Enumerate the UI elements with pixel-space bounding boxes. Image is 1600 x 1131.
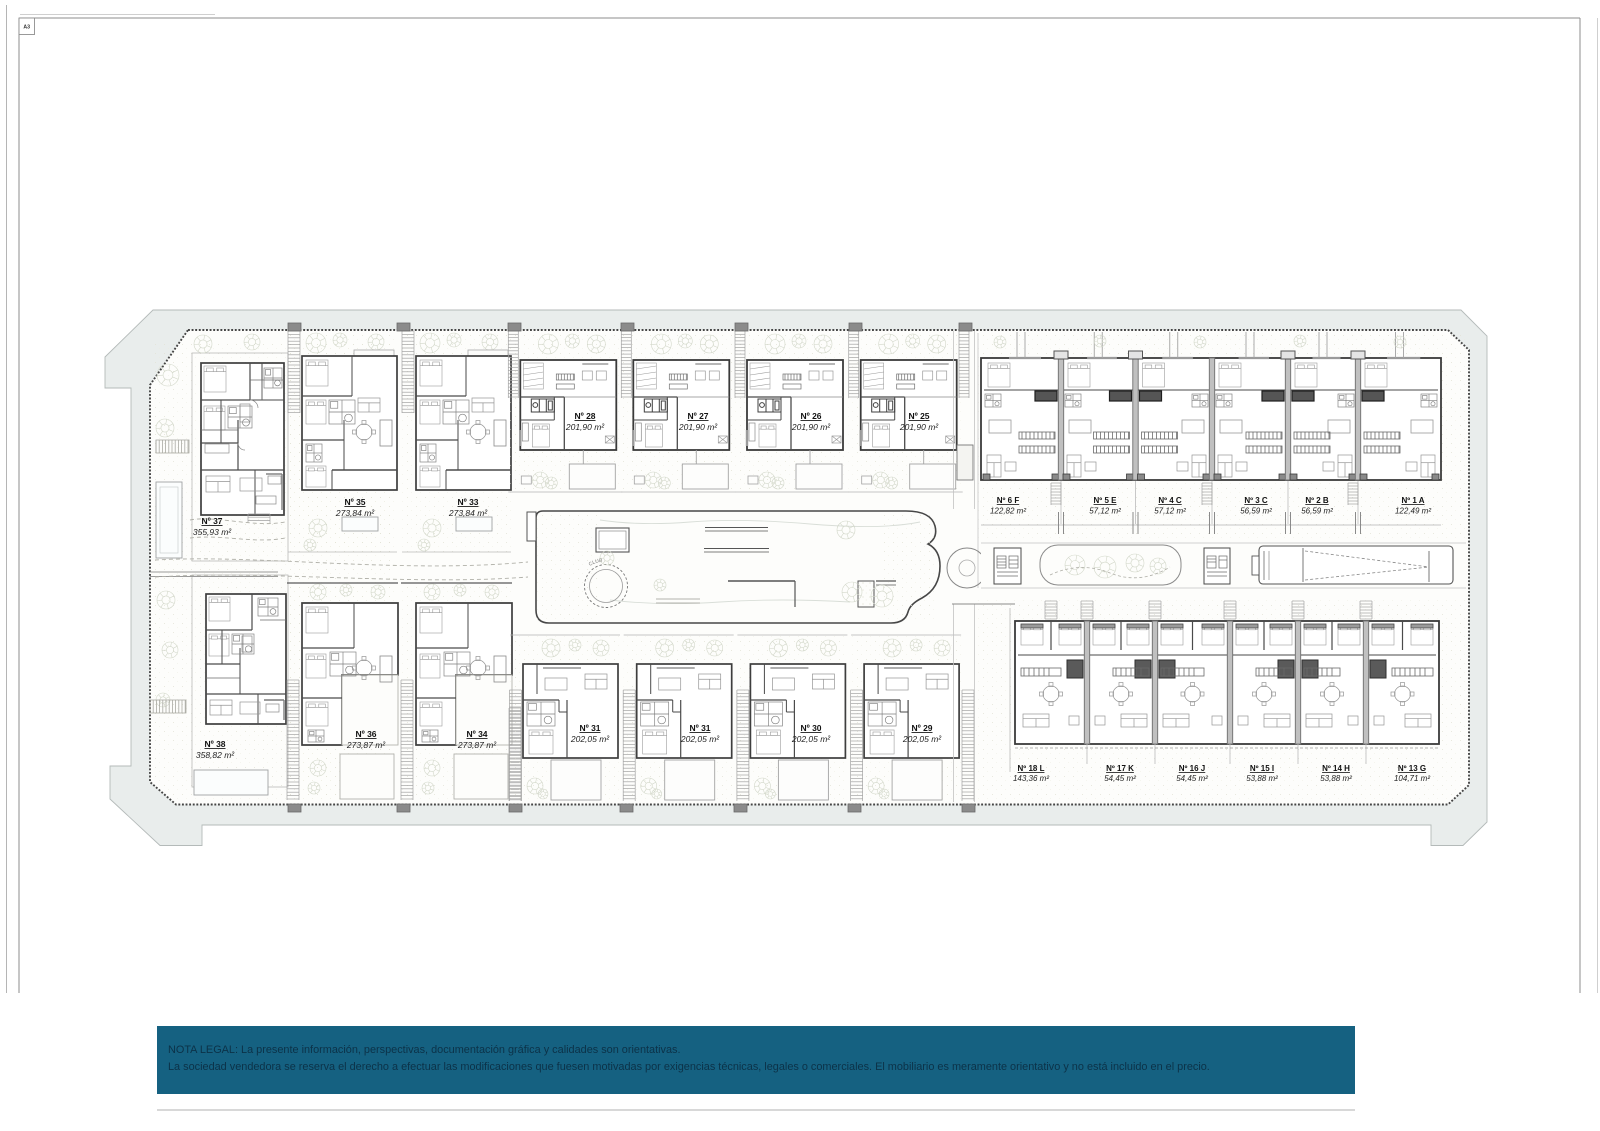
svg-text:La sociedad vendedora se reser: La sociedad vendedora se reserva el dere… (168, 1061, 1210, 1073)
svg-text:53,88 m²: 53,88 m² (1320, 774, 1352, 783)
svg-text:Nº 13 G: Nº 13 G (1398, 764, 1426, 773)
svg-text:53,88 m²: 53,88 m² (1246, 774, 1278, 783)
svg-text:358,82 m²: 358,82 m² (196, 750, 235, 760)
svg-text:273,87 m²: 273,87 m² (346, 740, 386, 750)
svg-text:122,82 m²: 122,82 m² (990, 507, 1026, 516)
svg-text:Nº 17 K: Nº 17 K (1106, 764, 1134, 773)
svg-text:273,87 m²: 273,87 m² (457, 740, 497, 750)
svg-text:57,12 m²: 57,12 m² (1154, 507, 1186, 516)
svg-text:Nº 37: Nº 37 (201, 516, 222, 526)
svg-text:202,05 m²: 202,05 m² (570, 734, 610, 744)
svg-text:56,59 m²: 56,59 m² (1301, 507, 1333, 516)
svg-text:201,90 m²: 201,90 m² (678, 422, 718, 432)
svg-text:Nº 28: Nº 28 (574, 411, 595, 421)
svg-text:Nº 1 A: Nº 1 A (1401, 496, 1424, 505)
svg-text:273,84 m²: 273,84 m² (448, 508, 488, 518)
svg-text:201,90 m²: 201,90 m² (565, 422, 605, 432)
svg-text:Nº 30: Nº 30 (800, 723, 821, 733)
svg-text:A3: A3 (23, 25, 30, 31)
svg-text:Nº 5 E: Nº 5 E (1094, 496, 1118, 505)
svg-text:Nº 2 B: Nº 2 B (1305, 496, 1329, 505)
svg-text:Nº 25: Nº 25 (908, 411, 929, 421)
svg-text:355,93 m²: 355,93 m² (193, 527, 232, 537)
svg-text:Nº 14 H: Nº 14 H (1322, 764, 1350, 773)
svg-text:57,12 m²: 57,12 m² (1089, 507, 1121, 516)
svg-text:202,05 m²: 202,05 m² (791, 734, 831, 744)
svg-text:Nº 18 L: Nº 18 L (1018, 764, 1045, 773)
svg-text:Nº 15 I: Nº 15 I (1250, 764, 1274, 773)
svg-text:54,45 m²: 54,45 m² (1104, 774, 1136, 783)
svg-text:Nº 36: Nº 36 (355, 729, 376, 739)
svg-text:273,84 m²: 273,84 m² (335, 508, 375, 518)
svg-text:54,45 m²: 54,45 m² (1176, 774, 1208, 783)
svg-text:Nº 26: Nº 26 (800, 411, 821, 421)
svg-text:Nº 33: Nº 33 (457, 497, 478, 507)
svg-text:201,90 m²: 201,90 m² (899, 422, 939, 432)
svg-text:Nº 3 C: Nº 3 C (1244, 496, 1268, 505)
svg-text:Nº 4 C: Nº 4 C (1158, 496, 1182, 505)
svg-text:56,59 m²: 56,59 m² (1240, 507, 1272, 516)
svg-text:Nº 31: Nº 31 (579, 723, 600, 733)
svg-text:NOTA LEGAL: La presente inform: NOTA LEGAL: La presente información, per… (168, 1044, 681, 1056)
svg-text:202,05 m²: 202,05 m² (680, 734, 720, 744)
svg-text:Nº 35: Nº 35 (344, 497, 365, 507)
svg-text:143,36 m²: 143,36 m² (1013, 774, 1049, 783)
svg-text:Nº 27: Nº 27 (687, 411, 708, 421)
svg-text:Nº 31: Nº 31 (689, 723, 710, 733)
svg-text:201,90 m²: 201,90 m² (791, 422, 831, 432)
svg-text:Nº 38: Nº 38 (204, 739, 225, 749)
svg-text:104,71 m²: 104,71 m² (1394, 774, 1430, 783)
svg-text:202,05 m²: 202,05 m² (902, 734, 942, 744)
svg-text:122,49 m²: 122,49 m² (1395, 507, 1431, 516)
svg-text:Nº 16 J: Nº 16 J (1179, 764, 1206, 773)
svg-text:Nº 29: Nº 29 (911, 723, 932, 733)
svg-text:Nº 34: Nº 34 (466, 729, 487, 739)
svg-text:Nº 6 F: Nº 6 F (997, 496, 1020, 505)
